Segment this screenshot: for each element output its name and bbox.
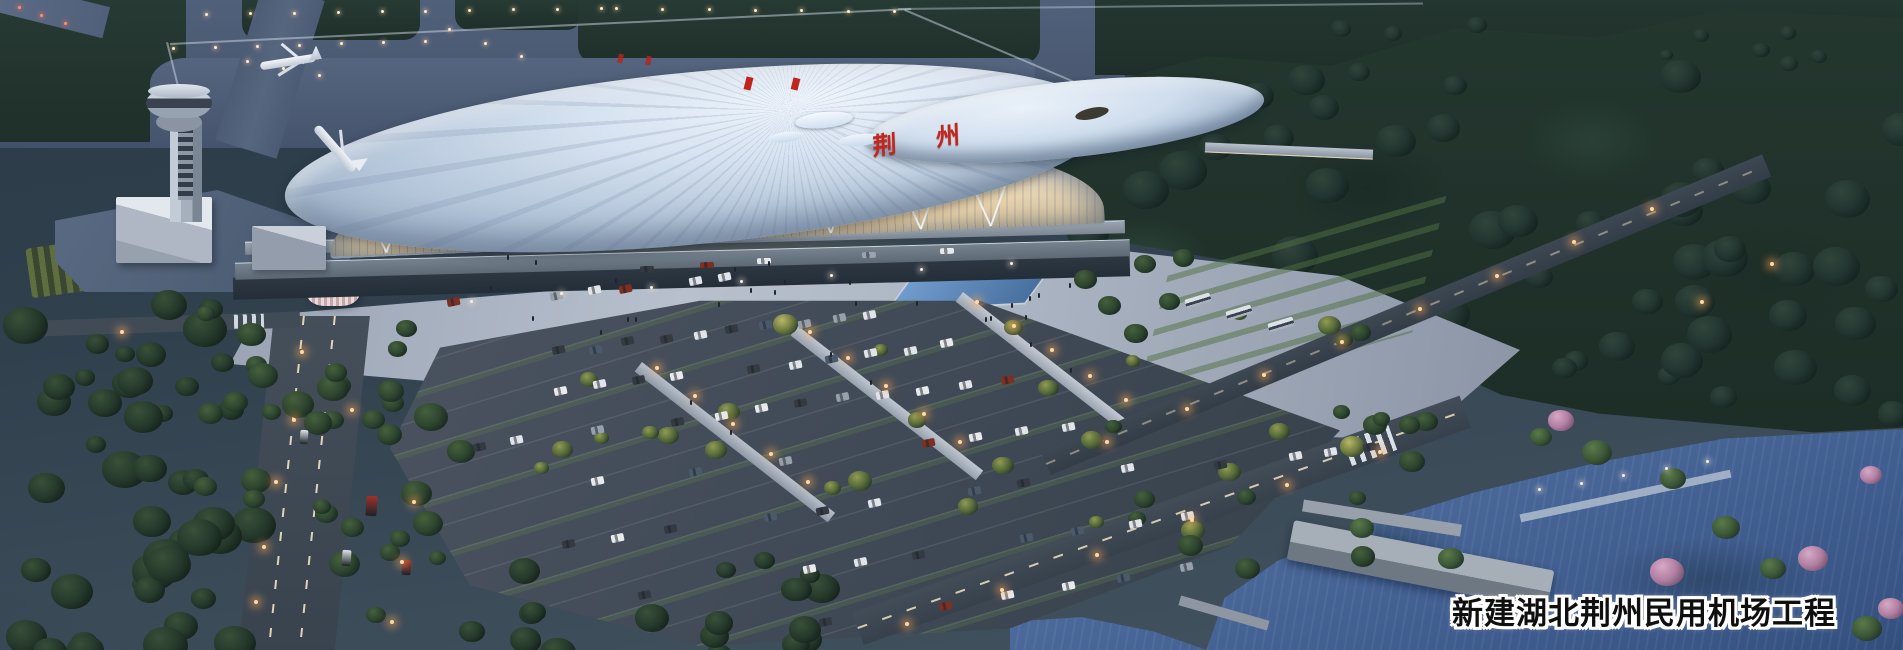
parked-car xyxy=(862,252,876,258)
tree xyxy=(1399,416,1420,434)
pedestrian xyxy=(750,288,752,293)
street-lamp xyxy=(390,620,394,624)
taxiway-edge-light xyxy=(381,10,384,13)
tree xyxy=(1438,548,1464,569)
street-lamp xyxy=(975,300,979,304)
airplane-on-taxiway xyxy=(256,44,332,86)
technical-building-small xyxy=(252,226,326,270)
taxiway-edge-light xyxy=(615,7,618,10)
tree xyxy=(1340,436,1365,457)
tree xyxy=(1098,296,1121,315)
tree xyxy=(992,457,1013,474)
tree xyxy=(635,604,669,632)
tree xyxy=(1878,598,1903,619)
street-lamp xyxy=(1000,588,1004,592)
tree xyxy=(51,574,93,609)
tree xyxy=(848,471,872,491)
street-lamp xyxy=(958,440,962,444)
tree xyxy=(33,638,66,650)
street-lamp xyxy=(769,452,773,456)
street-lamp xyxy=(1378,450,1382,454)
tree xyxy=(197,306,215,321)
tree xyxy=(1427,114,1461,142)
tree xyxy=(1309,95,1340,120)
taxiway-edge-light xyxy=(337,11,340,14)
grass-island xyxy=(578,0,1040,64)
pedestrian xyxy=(615,278,617,283)
taxiway-edge-light xyxy=(214,46,217,49)
tree xyxy=(1350,324,1370,341)
tree xyxy=(705,611,734,635)
taxiway-edge-light xyxy=(172,47,175,50)
tree xyxy=(1373,412,1390,426)
tree xyxy=(362,410,385,429)
tree xyxy=(380,544,400,560)
tree xyxy=(1126,355,1140,367)
tree xyxy=(459,621,485,643)
pedestrian xyxy=(507,255,509,260)
tree xyxy=(1582,440,1612,465)
tree xyxy=(1675,285,1716,318)
tree xyxy=(75,369,95,386)
tree xyxy=(789,616,821,643)
tree xyxy=(1178,535,1203,556)
airplane-fuselage xyxy=(313,124,358,174)
pedestrian xyxy=(1025,315,1027,320)
tree xyxy=(1835,307,1875,340)
parked-car xyxy=(700,262,714,268)
tree xyxy=(1760,558,1786,579)
control-tower-roof xyxy=(148,84,210,98)
pedestrian xyxy=(855,301,857,306)
tree xyxy=(86,334,109,353)
plaza-lamp xyxy=(1622,474,1625,477)
street-lamp xyxy=(1418,307,1422,311)
tree xyxy=(1693,29,1709,42)
tree xyxy=(146,546,191,583)
parked-car xyxy=(1180,562,1194,572)
street-lamp xyxy=(412,500,416,504)
tree xyxy=(1632,289,1663,314)
tree xyxy=(429,551,446,565)
tree xyxy=(3,307,48,344)
tree xyxy=(1173,249,1195,267)
tree xyxy=(1752,43,1769,57)
tree xyxy=(262,404,281,419)
street-lamp xyxy=(120,330,124,334)
tree xyxy=(658,427,679,444)
tree xyxy=(390,530,411,547)
tree xyxy=(1235,558,1260,579)
taxiway-edge-light xyxy=(661,8,664,11)
tree xyxy=(1306,168,1349,203)
street-lamp xyxy=(1050,348,1054,352)
street-lamp xyxy=(274,480,278,484)
street-lamp xyxy=(1105,440,1109,444)
runway-threshold-light xyxy=(40,14,43,17)
tree xyxy=(1660,468,1686,489)
plaza-lamp xyxy=(1580,482,1583,485)
pedestrian xyxy=(1030,342,1032,347)
tree xyxy=(88,389,122,417)
plaza-lamp xyxy=(650,286,653,289)
tree xyxy=(521,602,546,623)
tree xyxy=(1710,386,1737,408)
tree xyxy=(413,511,443,536)
tree xyxy=(1123,171,1169,209)
plaza-lamp xyxy=(560,292,563,295)
tree xyxy=(191,588,216,608)
runway-threshold-light xyxy=(18,6,21,9)
plaza-lamp xyxy=(830,274,833,277)
tree xyxy=(716,562,735,578)
plaza-lamp xyxy=(470,300,473,303)
street-lamp xyxy=(1262,373,1266,377)
tree xyxy=(1134,255,1156,273)
pedestrian xyxy=(1011,303,1013,308)
airport-rendering-scene: 荆州 新建湖北荆州民用机场工程 xyxy=(0,0,1903,650)
pedestrian xyxy=(635,317,637,322)
street-lamp xyxy=(1012,324,1016,328)
tree xyxy=(1038,380,1058,397)
taxiway-edge-light xyxy=(556,8,559,11)
street-lamp xyxy=(1340,340,1344,344)
tree xyxy=(388,341,407,356)
tree xyxy=(396,320,417,337)
tree xyxy=(237,323,265,346)
plaza-lamp xyxy=(1665,467,1668,470)
tree xyxy=(783,578,812,601)
tree xyxy=(1825,180,1871,217)
street-lamp xyxy=(262,545,266,549)
tree xyxy=(1498,205,1538,237)
tree xyxy=(1376,125,1416,157)
project-caption: 新建湖北荆州民用机场工程 xyxy=(1452,588,1836,633)
road-vehicle xyxy=(365,496,377,517)
street-lamp xyxy=(1770,262,1774,266)
control-tower-windows xyxy=(178,128,193,200)
tree xyxy=(115,346,135,362)
taxiway-edge-light xyxy=(246,60,249,63)
tree xyxy=(1134,490,1155,507)
street-lamp xyxy=(400,560,404,564)
road-vehicle xyxy=(300,430,309,445)
tree xyxy=(1548,410,1574,431)
tree xyxy=(1865,276,1897,302)
tree xyxy=(509,558,540,583)
plaza-lamp xyxy=(1538,488,1541,491)
tree xyxy=(117,367,152,396)
tree xyxy=(1774,252,1815,285)
tree xyxy=(414,403,448,431)
tree xyxy=(1081,431,1103,449)
plaza-lamp xyxy=(1706,460,1709,463)
pedestrian xyxy=(784,280,786,285)
tree xyxy=(211,353,235,372)
taxiway-edge-light xyxy=(205,13,208,16)
parked-car xyxy=(640,266,654,272)
street-lamp xyxy=(254,600,258,604)
tree xyxy=(1399,451,1424,472)
taxiway-edge-light xyxy=(600,7,603,10)
street-lamp xyxy=(350,408,354,412)
tree xyxy=(67,635,104,650)
tree xyxy=(198,403,223,423)
tree xyxy=(1811,50,1827,63)
taxiway-edge-light xyxy=(847,10,850,13)
pedestrian xyxy=(627,317,629,322)
tree xyxy=(1798,546,1828,571)
street-lamp xyxy=(1088,374,1092,378)
tree xyxy=(552,441,572,458)
tree xyxy=(313,499,331,514)
tree xyxy=(1105,420,1122,434)
tree xyxy=(1124,324,1147,343)
tree xyxy=(1349,491,1366,505)
tree xyxy=(1332,21,1351,37)
tree xyxy=(1650,558,1684,586)
tree xyxy=(1780,26,1796,39)
tree xyxy=(773,314,798,335)
tree xyxy=(1074,270,1097,289)
tree xyxy=(151,290,187,320)
taxiway-edge-light xyxy=(754,9,757,12)
tree xyxy=(540,638,575,650)
pedestrian xyxy=(990,316,992,321)
taxiway-edge-light xyxy=(893,10,896,13)
tree xyxy=(1599,332,1635,362)
plaza-lamp xyxy=(1010,262,1013,265)
street-lamp xyxy=(292,418,296,422)
road-vehicle xyxy=(341,550,351,567)
parked-car xyxy=(940,248,954,254)
tree xyxy=(1834,375,1871,405)
tree xyxy=(248,363,278,387)
street-lamp xyxy=(905,622,909,626)
pedestrian xyxy=(870,380,872,385)
taxiway-edge-light xyxy=(293,12,296,15)
street-lamp xyxy=(1572,240,1576,244)
taxiway-edge-light xyxy=(520,55,523,58)
tree xyxy=(958,498,978,515)
pedestrian xyxy=(490,286,492,291)
tree xyxy=(1769,300,1807,331)
pedestrian xyxy=(532,316,534,321)
tree xyxy=(194,477,217,496)
tree xyxy=(133,455,167,483)
street-lamp xyxy=(1190,518,1194,522)
pedestrian xyxy=(1070,368,1072,373)
tree xyxy=(1530,428,1552,446)
tree xyxy=(21,558,51,582)
tree xyxy=(1878,401,1903,426)
tree xyxy=(1350,518,1374,538)
plaza-lamp xyxy=(920,268,923,271)
street-lamp xyxy=(655,366,659,370)
tree xyxy=(1288,65,1325,95)
tree xyxy=(175,377,199,397)
tree xyxy=(1860,466,1882,484)
tree xyxy=(1089,516,1104,528)
tree xyxy=(136,342,166,367)
pedestrian xyxy=(1038,293,1040,298)
pedestrian xyxy=(535,260,537,265)
tree xyxy=(1852,616,1882,641)
street-lamp xyxy=(693,394,697,398)
street-lamp xyxy=(1285,483,1289,487)
tree xyxy=(1443,76,1466,95)
taxiway-edge-light xyxy=(484,42,487,45)
tree xyxy=(124,401,163,433)
street-lamp xyxy=(1185,407,1189,411)
street-lamp xyxy=(1700,300,1704,304)
pedestrian xyxy=(690,400,692,405)
pedestrian xyxy=(830,352,832,357)
runway-threshold-light xyxy=(64,22,67,25)
tree xyxy=(1318,316,1341,335)
street-lamp xyxy=(846,356,850,360)
plaza-lamp xyxy=(740,280,743,283)
tree xyxy=(223,392,248,412)
tree xyxy=(1333,405,1350,419)
street-lamp xyxy=(1495,274,1499,278)
tree xyxy=(1774,350,1817,385)
tree xyxy=(341,518,364,537)
street-lamp xyxy=(1124,398,1128,402)
tree xyxy=(28,473,65,503)
tree xyxy=(325,363,348,382)
tree xyxy=(1660,60,1701,93)
tree xyxy=(1661,343,1703,377)
street-lamp xyxy=(808,330,812,334)
pedestrian xyxy=(774,290,776,295)
tree xyxy=(1351,546,1376,566)
tree xyxy=(1552,358,1577,378)
tree xyxy=(1660,50,1673,60)
tree xyxy=(366,607,386,623)
tree xyxy=(86,436,107,453)
street-lamp xyxy=(922,412,926,416)
taxiway-edge-light xyxy=(424,40,427,43)
pedestrian xyxy=(730,430,732,435)
street-lamp xyxy=(731,422,735,426)
street-lamp xyxy=(1095,553,1099,557)
tree xyxy=(43,374,74,400)
pedestrian xyxy=(849,280,851,285)
tree xyxy=(401,481,431,506)
tree xyxy=(1712,516,1740,539)
street-lamp xyxy=(1650,207,1654,211)
street-lamp xyxy=(884,384,888,388)
street-lamp xyxy=(806,480,810,484)
tree xyxy=(642,426,659,440)
pedestrian xyxy=(600,330,602,335)
street-lamp xyxy=(300,350,304,354)
tree xyxy=(510,627,541,650)
tree xyxy=(133,506,171,537)
taxiway-edge-light xyxy=(448,28,451,31)
pedestrian xyxy=(1069,283,1071,288)
tree xyxy=(1813,247,1860,285)
tree xyxy=(705,441,727,459)
tree xyxy=(824,481,841,495)
taxiway-edge-light xyxy=(708,8,711,11)
